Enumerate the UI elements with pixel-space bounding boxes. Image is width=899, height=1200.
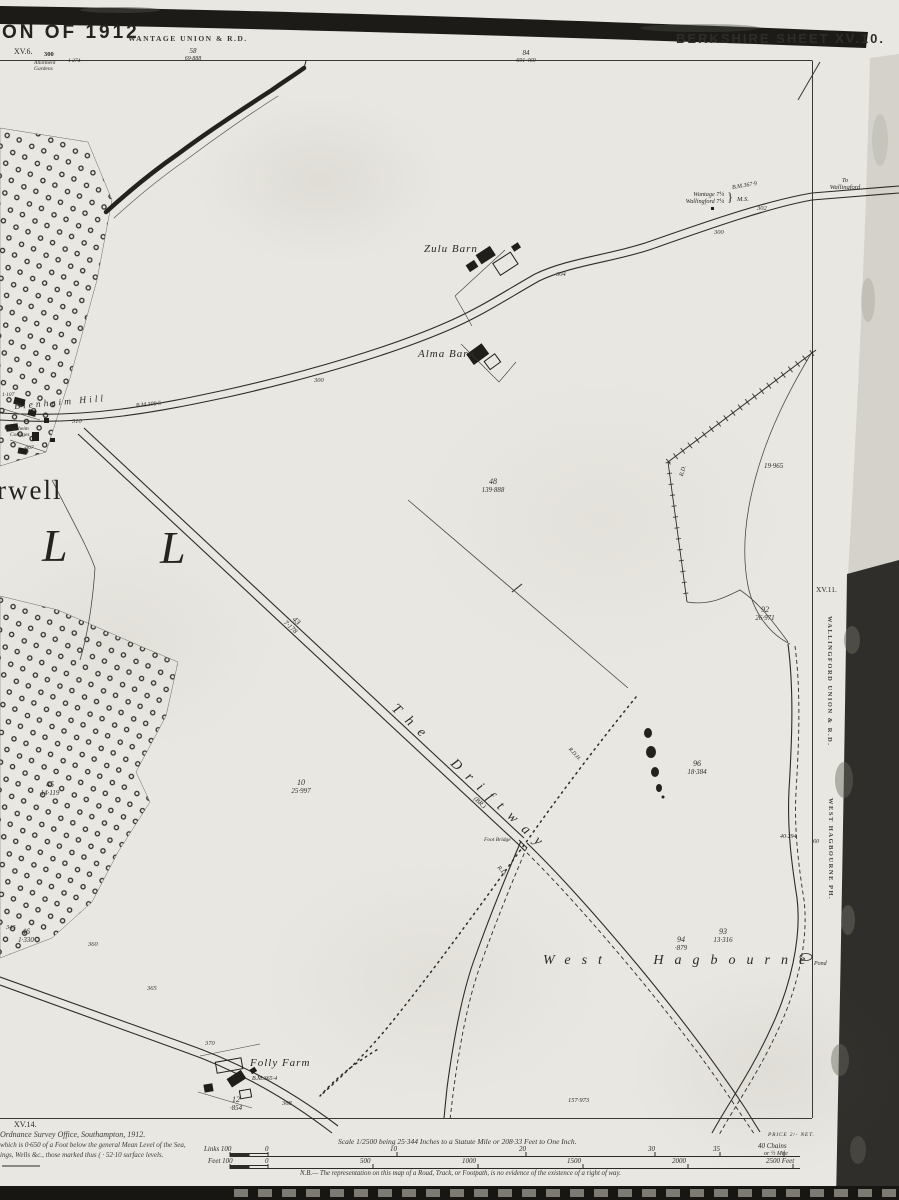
allotment-gardens-label: Allotment Gardens <box>34 60 66 73</box>
place-label-west-hagbourne: West Hagbourne <box>543 954 816 969</box>
parcel-area: 14·119 <box>28 790 72 798</box>
milestone-destinations: Wantage 7¼ Wallingford 7¼ <box>664 192 724 205</box>
sheet-ref-topleft: XV.6. <box>14 48 33 56</box>
allotment-area: 1·274 <box>68 59 80 65</box>
scan-band-bottom <box>0 1186 899 1200</box>
links-scale-label: Links 100 <box>204 1146 231 1153</box>
acreage-40-294: 40·294 <box>780 834 797 840</box>
place-label-pond: Pond <box>814 961 827 967</box>
parcel-93: 93 13·316 <box>700 928 746 945</box>
links-tick-30: 30 <box>648 1146 662 1153</box>
links-zero: 0 <box>265 1146 269 1153</box>
rights-of-way-note: N.B.— The representation on this map of … <box>300 1170 621 1177</box>
parcel-number: 84 <box>506 50 546 58</box>
map-sheet: ON OF 1912 WANTAGE UNION & R.D. BERKSHIR… <box>0 0 899 1200</box>
acreage-19-965: 19·965 <box>764 463 783 470</box>
links-tick-20: 20 <box>519 1146 533 1153</box>
scale-statement: Scale 1/2500 being 25·344 Inches to a St… <box>338 1138 577 1146</box>
spot-height: 300 <box>314 377 324 384</box>
to-wallingford-line-2: Wallingford <box>814 185 876 192</box>
parcel-94: 94 ·879 <box>664 936 698 953</box>
footpaths <box>320 697 636 1096</box>
links-tick-10: 10 <box>390 1146 404 1153</box>
number-157-973: 157·973 <box>568 1098 589 1105</box>
top-parcel-mid: 84 691·469 <box>506 50 546 65</box>
spot-height: 360 <box>88 941 98 948</box>
feet-tick-1500: 1500 <box>567 1158 599 1165</box>
milestone-brace: } <box>727 190 733 204</box>
milestone-ms-label: M.S. <box>737 197 749 204</box>
map-linework <box>0 0 899 1200</box>
place-label-folly-farm: Folly Farm <box>250 1058 310 1070</box>
tree-blobs <box>644 728 812 961</box>
links-tick-35: 35 <box>713 1146 727 1153</box>
spot-height: 300 <box>714 229 724 236</box>
links-end-label: 40 Chains <box>758 1143 787 1150</box>
parcel-area: 69·888 <box>176 56 210 63</box>
number-60: 60 <box>813 839 819 845</box>
parcel-45: 45 14·119 <box>28 781 72 798</box>
place-letter-l1: L <box>42 522 68 570</box>
sheet-title: BERKSHIRE SHEET XV.10. <box>676 32 885 46</box>
spot-height: 368 <box>282 1100 292 1107</box>
hedge-line <box>106 61 306 218</box>
place-letter-l2: L <box>160 524 186 572</box>
parcel-area: 25·997 <box>281 788 321 796</box>
imprint-line-3: ings, Wells &c., those marked thus ( · 5… <box>0 1152 163 1159</box>
parcel-10: 10 25·997 <box>281 779 321 796</box>
foot-bridge-label: Foot Bridge <box>484 838 511 844</box>
parcel-area: 18·384 <box>674 769 720 777</box>
spot-height: 302 <box>757 205 767 212</box>
parcel-48: 48 139·888 <box>458 478 528 495</box>
spot-height: 370 <box>205 1040 215 1047</box>
benchmark-label: B.M.365·4 <box>252 1076 277 1082</box>
edition-label: ON OF 1912 <box>2 23 140 43</box>
vertical-parish-label: WEST HAGBOURNE PH. <box>827 798 834 928</box>
place-label-zulu-barn: Zulu Barn <box>424 244 478 256</box>
imprint-line-1: Ordnance Survey Office, Southampton, 191… <box>0 1131 145 1139</box>
parcel-area: 139·888 <box>458 487 528 495</box>
spot-height: 365 <box>147 985 157 992</box>
feet-zero: 0 <box>265 1158 269 1165</box>
boundary-ticks <box>668 350 816 602</box>
vertical-union-label: WALLINGFORD UNION & R.D. <box>826 616 833 816</box>
to-wallingford-label: To Wallingford <box>814 178 876 192</box>
spot-height: 310 <box>72 418 82 425</box>
sheet-ref-right: XV.11. <box>816 586 837 594</box>
orchard-areas <box>0 128 178 958</box>
place-label-harwell-partial: rwell <box>0 476 62 504</box>
parcel-area: 13·316 <box>700 937 746 945</box>
price-label: PRICE 2/- NET. <box>768 1133 815 1139</box>
parcel-area: 26·971 <box>742 615 788 623</box>
acreage-1-107: 1·107 <box>2 393 14 399</box>
parcel-92: 92 26·971 <box>742 606 788 623</box>
place-label-alma-barn: Alma Barn <box>418 349 475 361</box>
place-label-blenheim-cottages-2: Cottages <box>10 433 30 439</box>
sheet-ref-bottomleft: XV.14. <box>14 1121 37 1129</box>
union-top-label: WANTAGE UNION & R.D. <box>128 35 248 43</box>
parcel-area: ·854 <box>220 1105 252 1113</box>
spot-height: 304 <box>556 271 566 278</box>
parcel-12: 12 ·854 <box>220 1096 252 1113</box>
parcel-area: 1·330 <box>4 937 48 945</box>
feet-tick-2000: 2000 <box>672 1158 704 1165</box>
top-spot-height: 300 <box>44 52 54 59</box>
acreage-007: ·007 <box>24 446 34 452</box>
parcel-area: ·879 <box>664 945 698 953</box>
parcel-96: 96 18·384 <box>674 760 720 777</box>
feet-tick-500: 500 <box>360 1158 386 1165</box>
parcel-number: 58 <box>176 48 210 56</box>
imprint-line-2: which is 0·650 of a Foot below the gener… <box>0 1142 186 1149</box>
feet-scale-label: Feet 100 <box>208 1158 233 1165</box>
top-parcel-left: 58 69·888 <box>176 48 210 63</box>
scan-edge-right <box>831 54 899 1200</box>
parcel-area: 691·469 <box>506 58 546 65</box>
spot-height: 345 <box>6 924 16 931</box>
feet-tick-1000: 1000 <box>462 1158 494 1165</box>
milestone-line-2: Wallingford 7¼ <box>664 199 724 206</box>
feet-end-label: 2500 Feet <box>766 1158 794 1165</box>
